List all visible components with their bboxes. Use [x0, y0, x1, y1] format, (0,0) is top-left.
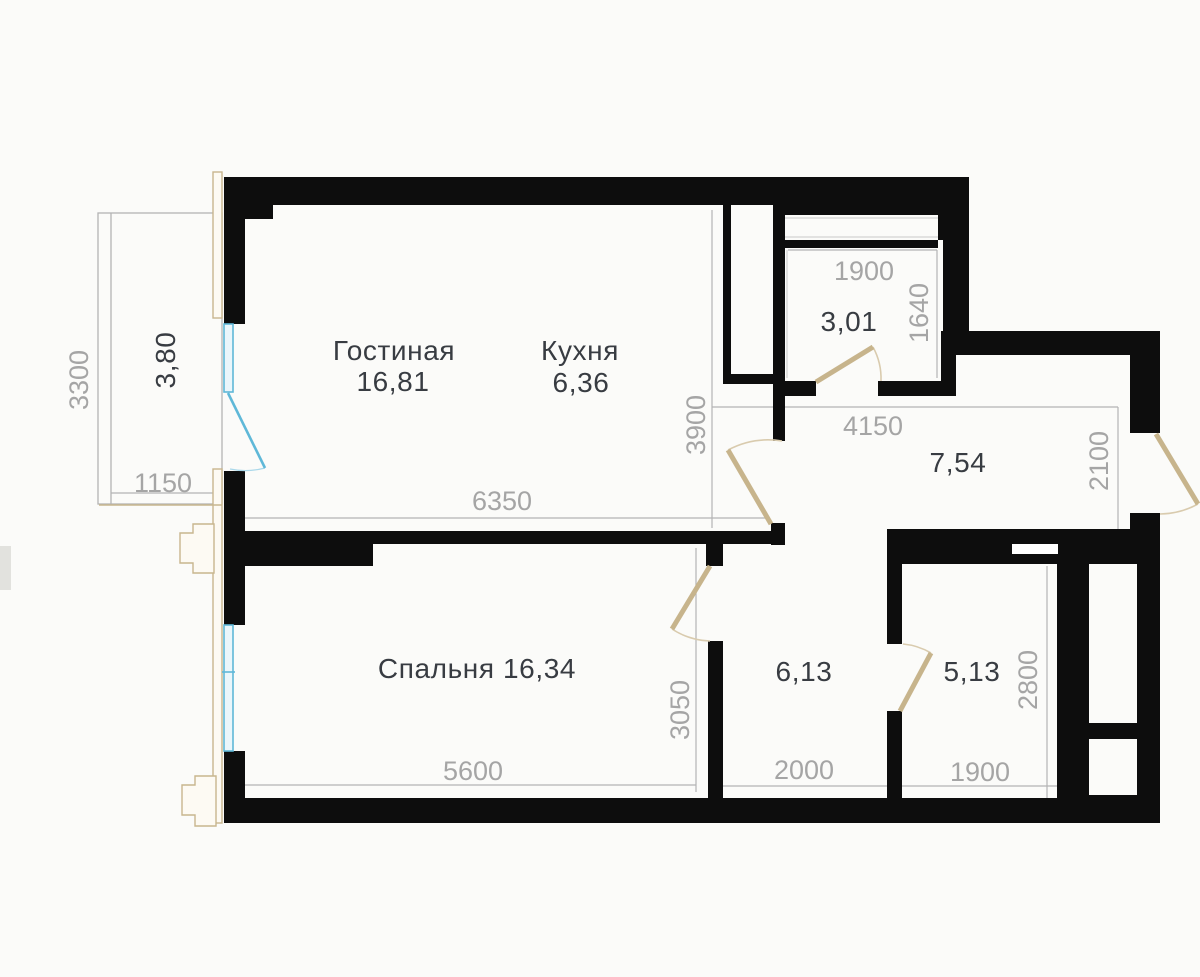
svg-text:1900: 1900	[834, 256, 894, 286]
svg-text:6350: 6350	[472, 486, 532, 516]
svg-text:3,80: 3,80	[150, 332, 181, 389]
svg-text:6,36: 6,36	[553, 367, 610, 398]
svg-text:5600: 5600	[443, 756, 503, 786]
svg-text:3050: 3050	[665, 680, 695, 740]
svg-text:16,81: 16,81	[356, 366, 429, 397]
svg-text:2000: 2000	[774, 755, 834, 785]
svg-text:Кухня: Кухня	[541, 335, 619, 366]
svg-text:Спальня 16,34: Спальня 16,34	[378, 653, 576, 684]
svg-text:Гостиная: Гостиная	[333, 335, 455, 366]
svg-text:1640: 1640	[904, 283, 934, 343]
svg-text:2800: 2800	[1013, 650, 1043, 710]
svg-text:3300: 3300	[64, 350, 94, 410]
svg-text:4150: 4150	[843, 411, 903, 441]
svg-text:5,13: 5,13	[944, 656, 1001, 687]
svg-text:3,01: 3,01	[821, 306, 878, 337]
svg-text:3900: 3900	[681, 395, 711, 455]
svg-text:7,54: 7,54	[930, 447, 987, 478]
svg-text:6,13: 6,13	[776, 656, 833, 687]
svg-text:1150: 1150	[134, 468, 192, 498]
svg-text:2100: 2100	[1084, 431, 1114, 491]
svg-text:1900: 1900	[950, 757, 1010, 787]
